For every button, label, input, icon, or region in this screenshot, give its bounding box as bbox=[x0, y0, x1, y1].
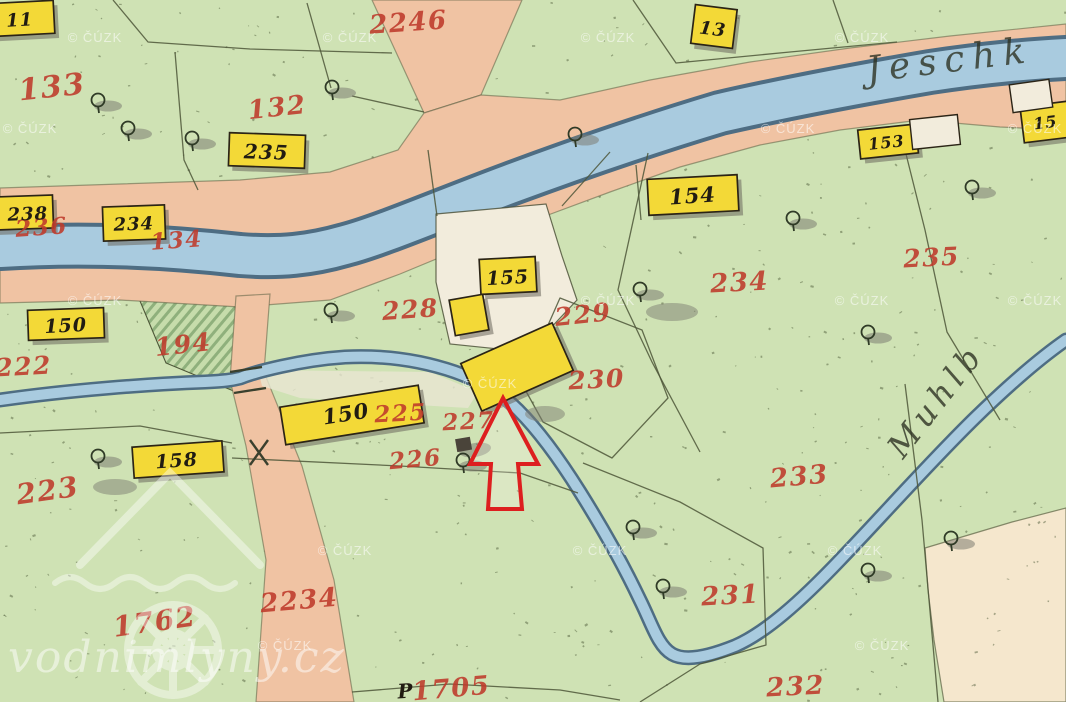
parcel-number-235: 235 bbox=[901, 242, 960, 274]
building-number-235: 235 bbox=[242, 139, 289, 165]
parcel-number-232: 232 bbox=[764, 670, 825, 702]
copyright-watermark: © ČÚZK bbox=[761, 121, 816, 136]
building-number-155: 155 bbox=[486, 266, 530, 290]
site-watermark: vodnimlyny.cz bbox=[8, 632, 346, 683]
copyright-watermark: © ČÚZK bbox=[835, 30, 890, 45]
copyright-watermark: © ČÚZK bbox=[835, 293, 890, 308]
copyright-watermark: © ČÚZK bbox=[1008, 121, 1063, 136]
copyright-watermark: © ČÚZK bbox=[855, 638, 910, 653]
building-number-238: 238 bbox=[6, 203, 48, 225]
parcel-number-2246: 2246 bbox=[367, 5, 448, 40]
parcel-number-226: 226 bbox=[387, 444, 443, 476]
copyright-watermark: © ČÚZK bbox=[573, 543, 628, 558]
parcel-number-231: 231 bbox=[699, 579, 760, 612]
copyright-watermark: © ČÚZK bbox=[828, 543, 883, 558]
copyright-watermark: © ČÚZK bbox=[3, 121, 58, 136]
building-white-2 bbox=[1009, 79, 1053, 112]
building-white-1 bbox=[910, 115, 961, 150]
building-number-234: 234 bbox=[112, 213, 154, 235]
parcel-number-134: 134 bbox=[149, 225, 203, 256]
building-number-11: 11 bbox=[6, 9, 34, 31]
map-canvas[interactable]: 133 132 2246 236 134 194 222 223 228 229… bbox=[0, 0, 1066, 702]
parcel-number-234: 234 bbox=[708, 266, 769, 299]
parcel-number-228: 228 bbox=[380, 293, 440, 326]
building-number-158: 158 bbox=[155, 449, 199, 474]
copyright-watermark: © ČÚZK bbox=[463, 376, 518, 391]
copyright-watermark: © ČÚZK bbox=[318, 543, 373, 558]
copyright-watermark: © ČÚZK bbox=[68, 30, 123, 45]
parcel-number-225: 225 bbox=[373, 399, 428, 429]
building-number-153: 153 bbox=[867, 131, 905, 154]
copyright-watermark: © ČÚZK bbox=[1008, 293, 1063, 308]
parcel-number-133: 133 bbox=[17, 67, 87, 109]
building-small-square bbox=[449, 294, 494, 341]
copyright-watermark: © ČÚZK bbox=[323, 30, 378, 45]
parcel-number-132: 132 bbox=[246, 90, 308, 126]
parcel-number-194: 194 bbox=[153, 327, 212, 362]
copyright-watermark: © ČÚZK bbox=[68, 293, 123, 308]
copyright-watermark: © ČÚZK bbox=[581, 293, 636, 308]
parcel-number-222: 222 bbox=[0, 351, 53, 383]
building-number-13: 13 bbox=[698, 17, 727, 41]
building-number-150a: 150 bbox=[44, 314, 88, 338]
parcel-number-233: 233 bbox=[768, 460, 830, 495]
building-number-154: 154 bbox=[668, 181, 716, 209]
copyright-watermark: © ČÚZK bbox=[581, 30, 636, 45]
parcel-number-230: 230 bbox=[566, 364, 625, 396]
